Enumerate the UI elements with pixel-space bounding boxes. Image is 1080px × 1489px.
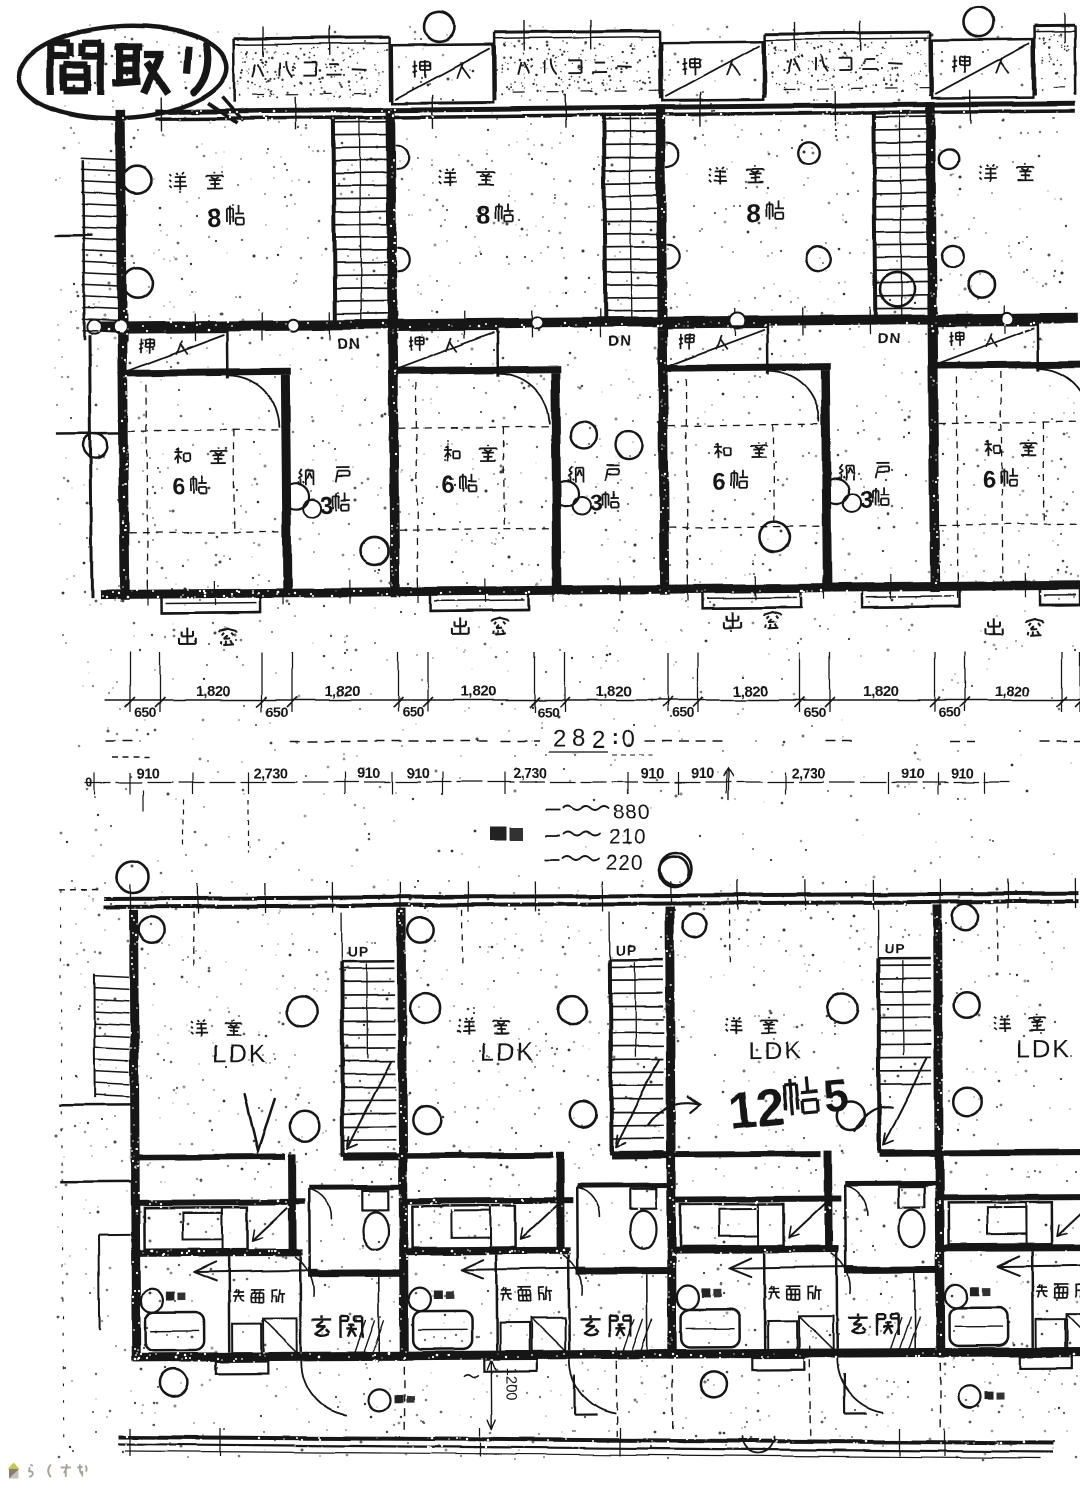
- svg-text:8: 8: [206, 203, 221, 233]
- svg-text:650: 650: [804, 704, 827, 720]
- svg-text:1,820: 1,820: [732, 683, 767, 700]
- svg-text:2,730: 2,730: [253, 766, 287, 782]
- svg-text:910: 910: [901, 766, 924, 782]
- svg-text:910: 910: [357, 766, 380, 782]
- svg-text:910: 910: [691, 766, 714, 782]
- svg-text:6: 6: [712, 469, 726, 496]
- svg-text:3: 3: [320, 492, 334, 519]
- svg-text:1,820: 1,820: [460, 683, 495, 700]
- svg-text:2: 2: [553, 726, 566, 753]
- svg-text:8: 8: [476, 200, 491, 230]
- svg-text:12: 12: [726, 1079, 787, 1140]
- svg-text:1,820: 1,820: [195, 683, 230, 700]
- svg-text:880: 880: [612, 801, 650, 824]
- svg-text:650: 650: [402, 704, 425, 720]
- svg-text:650: 650: [537, 704, 560, 720]
- svg-text:6: 6: [442, 472, 456, 499]
- svg-text:DN: DN: [337, 336, 361, 353]
- svg-text:220: 220: [606, 851, 644, 874]
- svg-text:UP: UP: [884, 940, 906, 956]
- svg-text:UP: UP: [616, 942, 638, 958]
- svg-text:650: 650: [672, 704, 695, 720]
- svg-text:0: 0: [622, 726, 635, 753]
- svg-text:910: 910: [407, 766, 430, 782]
- svg-text::: :: [612, 727, 619, 749]
- svg-text:UP: UP: [348, 943, 370, 959]
- svg-text:2,730: 2,730: [791, 766, 825, 782]
- svg-text:910: 910: [951, 766, 974, 782]
- svg-text:8: 8: [746, 198, 761, 228]
- svg-text:DN: DN: [877, 330, 901, 347]
- svg-text:2: 2: [592, 727, 605, 754]
- svg-text:1,820: 1,820: [863, 683, 898, 700]
- svg-text:650: 650: [939, 704, 962, 720]
- svg-text:1,820: 1,820: [994, 683, 1029, 700]
- svg-text:3: 3: [590, 489, 604, 516]
- svg-text:1,820: 1,820: [596, 683, 631, 700]
- svg-text:LDK: LDK: [748, 1037, 803, 1065]
- svg-text:0: 0: [86, 774, 93, 789]
- svg-text:LDK: LDK: [212, 1040, 267, 1068]
- svg-text:DN: DN: [607, 333, 631, 350]
- svg-text:910: 910: [137, 766, 160, 782]
- svg-text:2,730: 2,730: [513, 766, 547, 782]
- svg-text:8: 8: [572, 725, 585, 752]
- svg-text:LDK: LDK: [1016, 1035, 1071, 1063]
- svg-text:1,820: 1,820: [324, 683, 359, 700]
- svg-text:650: 650: [266, 704, 289, 720]
- svg-text:LDK: LDK: [480, 1038, 535, 1066]
- svg-text:3: 3: [860, 487, 874, 514]
- svg-text:210: 210: [608, 826, 646, 849]
- svg-text:6: 6: [172, 474, 186, 501]
- svg-text:910: 910: [641, 766, 664, 782]
- svg-text:6: 6: [982, 466, 996, 493]
- svg-text:650: 650: [134, 704, 157, 720]
